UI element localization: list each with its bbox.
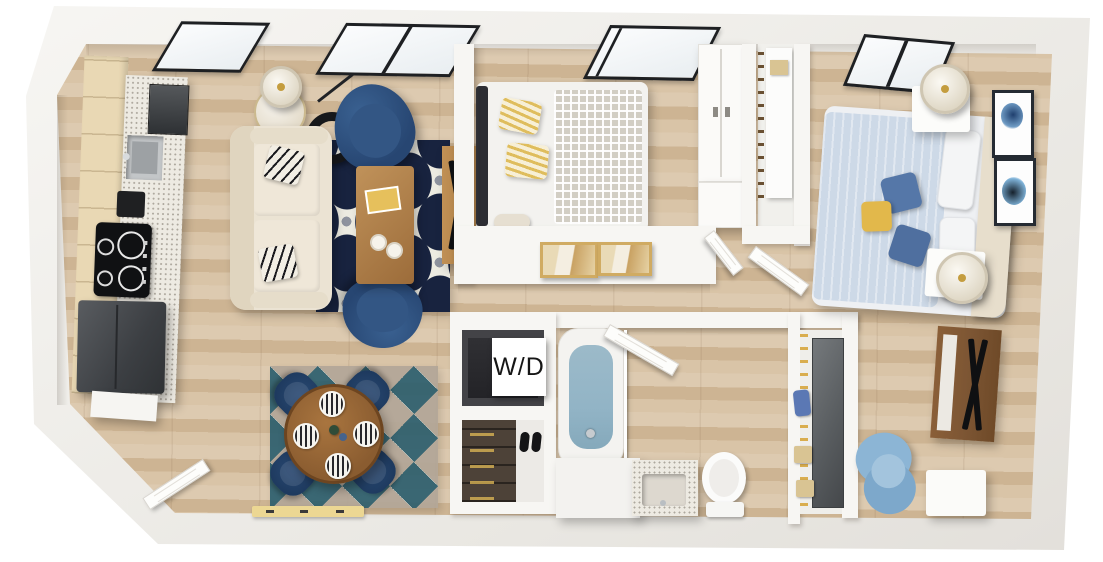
refrigerator [76,300,166,394]
patterned-blanket [554,90,642,224]
throw-pillow [257,243,298,283]
burner [97,238,115,256]
table-lamp [260,66,302,108]
sink-faucet [123,153,130,160]
cooktop-controls [142,236,148,284]
magazines [364,186,401,214]
centerpiece [339,433,347,441]
place-setting [293,423,319,449]
sofa-armrest [250,292,328,308]
toilet-bowl [702,452,746,504]
wall [742,226,810,244]
bedroom1-cabinet [698,182,744,228]
console-drawers [937,334,958,431]
place-setting [353,421,379,447]
place-setting [325,453,351,479]
wall-shadow [458,284,710,294]
table-lamp [920,64,970,114]
bedroom1-wardrobe [698,44,744,182]
kitchen [0,0,263,446]
storage-box [770,60,788,75]
storage-box [796,480,814,497]
cup [370,234,387,251]
window-mullion [381,27,412,73]
table-lamp [936,252,988,304]
coffee-table [356,166,414,284]
toilet-seat [709,459,739,497]
side-table-cube [926,470,986,516]
place-setting [319,391,345,417]
sink-basin [131,141,158,174]
wardrobe-handle [725,107,730,117]
bag [793,389,812,417]
bench-detail [300,510,308,513]
washer-dryer-label-text: W/D [493,353,545,382]
toilet-tank [706,502,744,517]
counter-end-panel [90,391,158,422]
bench-detail [336,510,344,513]
storage-box [794,446,812,463]
centerpiece [329,425,339,435]
art-detail [1001,103,1023,129]
linen-closet [758,44,794,228]
fridge-door-split [115,305,119,389]
wardrobe-door-split [720,49,722,177]
armchair-cushion [354,285,412,336]
entry-bench [252,506,364,517]
wall [742,44,756,226]
wall [556,312,802,328]
bath-half-wall [556,458,640,518]
sofa [230,126,332,310]
burner [97,270,114,287]
kitchen-sink [126,135,164,180]
wardrobe-handle [713,107,718,117]
wall-oven [148,84,190,135]
desk-chair [852,428,927,522]
washer-dryer-label: W/D [492,338,546,396]
striped-pillow [498,97,543,135]
wall-with-art [454,226,716,284]
walkin-closet [800,330,842,514]
wall-art [994,158,1036,226]
cooktop [93,222,152,298]
closet-block: W/D [450,312,556,514]
vanity-counter [632,460,698,516]
art-detail [1002,177,1026,205]
dining-table [284,384,384,484]
wall [842,312,858,518]
window-mullion [886,41,909,87]
bedroom1-bed [476,82,648,232]
entry-closet-niche [462,420,544,502]
cup [386,242,403,259]
striped-pillow [505,142,550,180]
accent-pillow-yellow [861,201,892,232]
bedroom2-bed [811,105,1018,318]
framed-print [540,242,598,278]
burner [117,231,146,260]
floorplan-render: W/D [0,0,1103,562]
sofa-backrest [230,126,254,310]
bathtub [558,328,624,468]
wall-art [992,90,1034,158]
closet-shelf-slots [758,48,764,198]
bench-detail [266,510,274,513]
tub-faucet [586,429,595,438]
burner [118,265,145,292]
media-console [930,326,1002,442]
coffee-maker [116,191,145,218]
wall [794,44,810,246]
sliding-closet-door [812,338,844,508]
sink-faucet [660,500,666,506]
armchair-cushion [343,98,407,163]
shoe-shelf-accents [470,422,494,500]
framed-print [598,242,652,276]
bed-headboard [476,86,488,226]
sofa-armrest [250,128,328,144]
